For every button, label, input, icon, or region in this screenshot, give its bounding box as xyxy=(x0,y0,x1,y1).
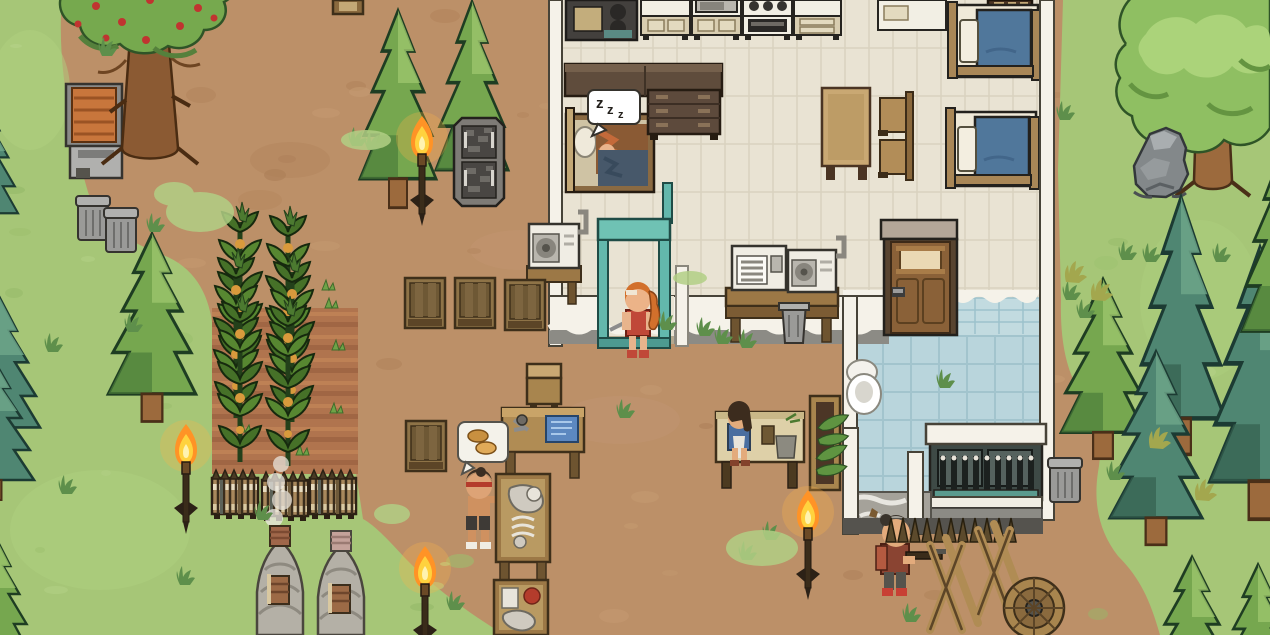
svg-text:z: z xyxy=(596,95,604,112)
svg-text:z: z xyxy=(618,109,624,121)
svg-text:z: z xyxy=(607,102,614,117)
